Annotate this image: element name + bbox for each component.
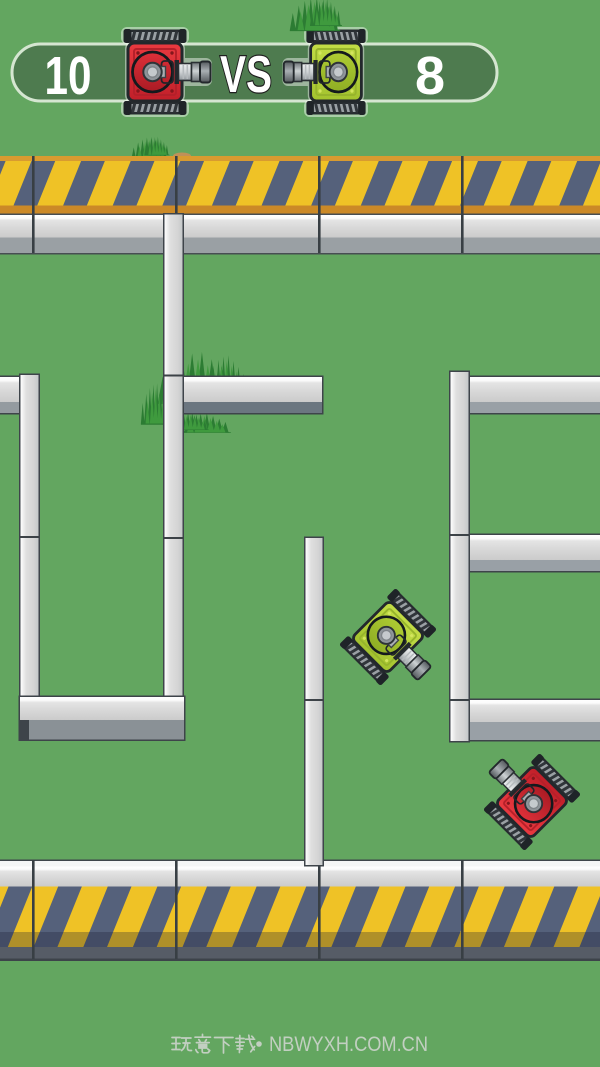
svg-text:NBWYXH.COM.CN: NBWYXH.COM.CN xyxy=(269,1033,428,1056)
svg-text:10: 10 xyxy=(45,46,92,106)
svg-text:8: 8 xyxy=(415,46,445,106)
svg-text:VS: VS xyxy=(220,46,272,104)
